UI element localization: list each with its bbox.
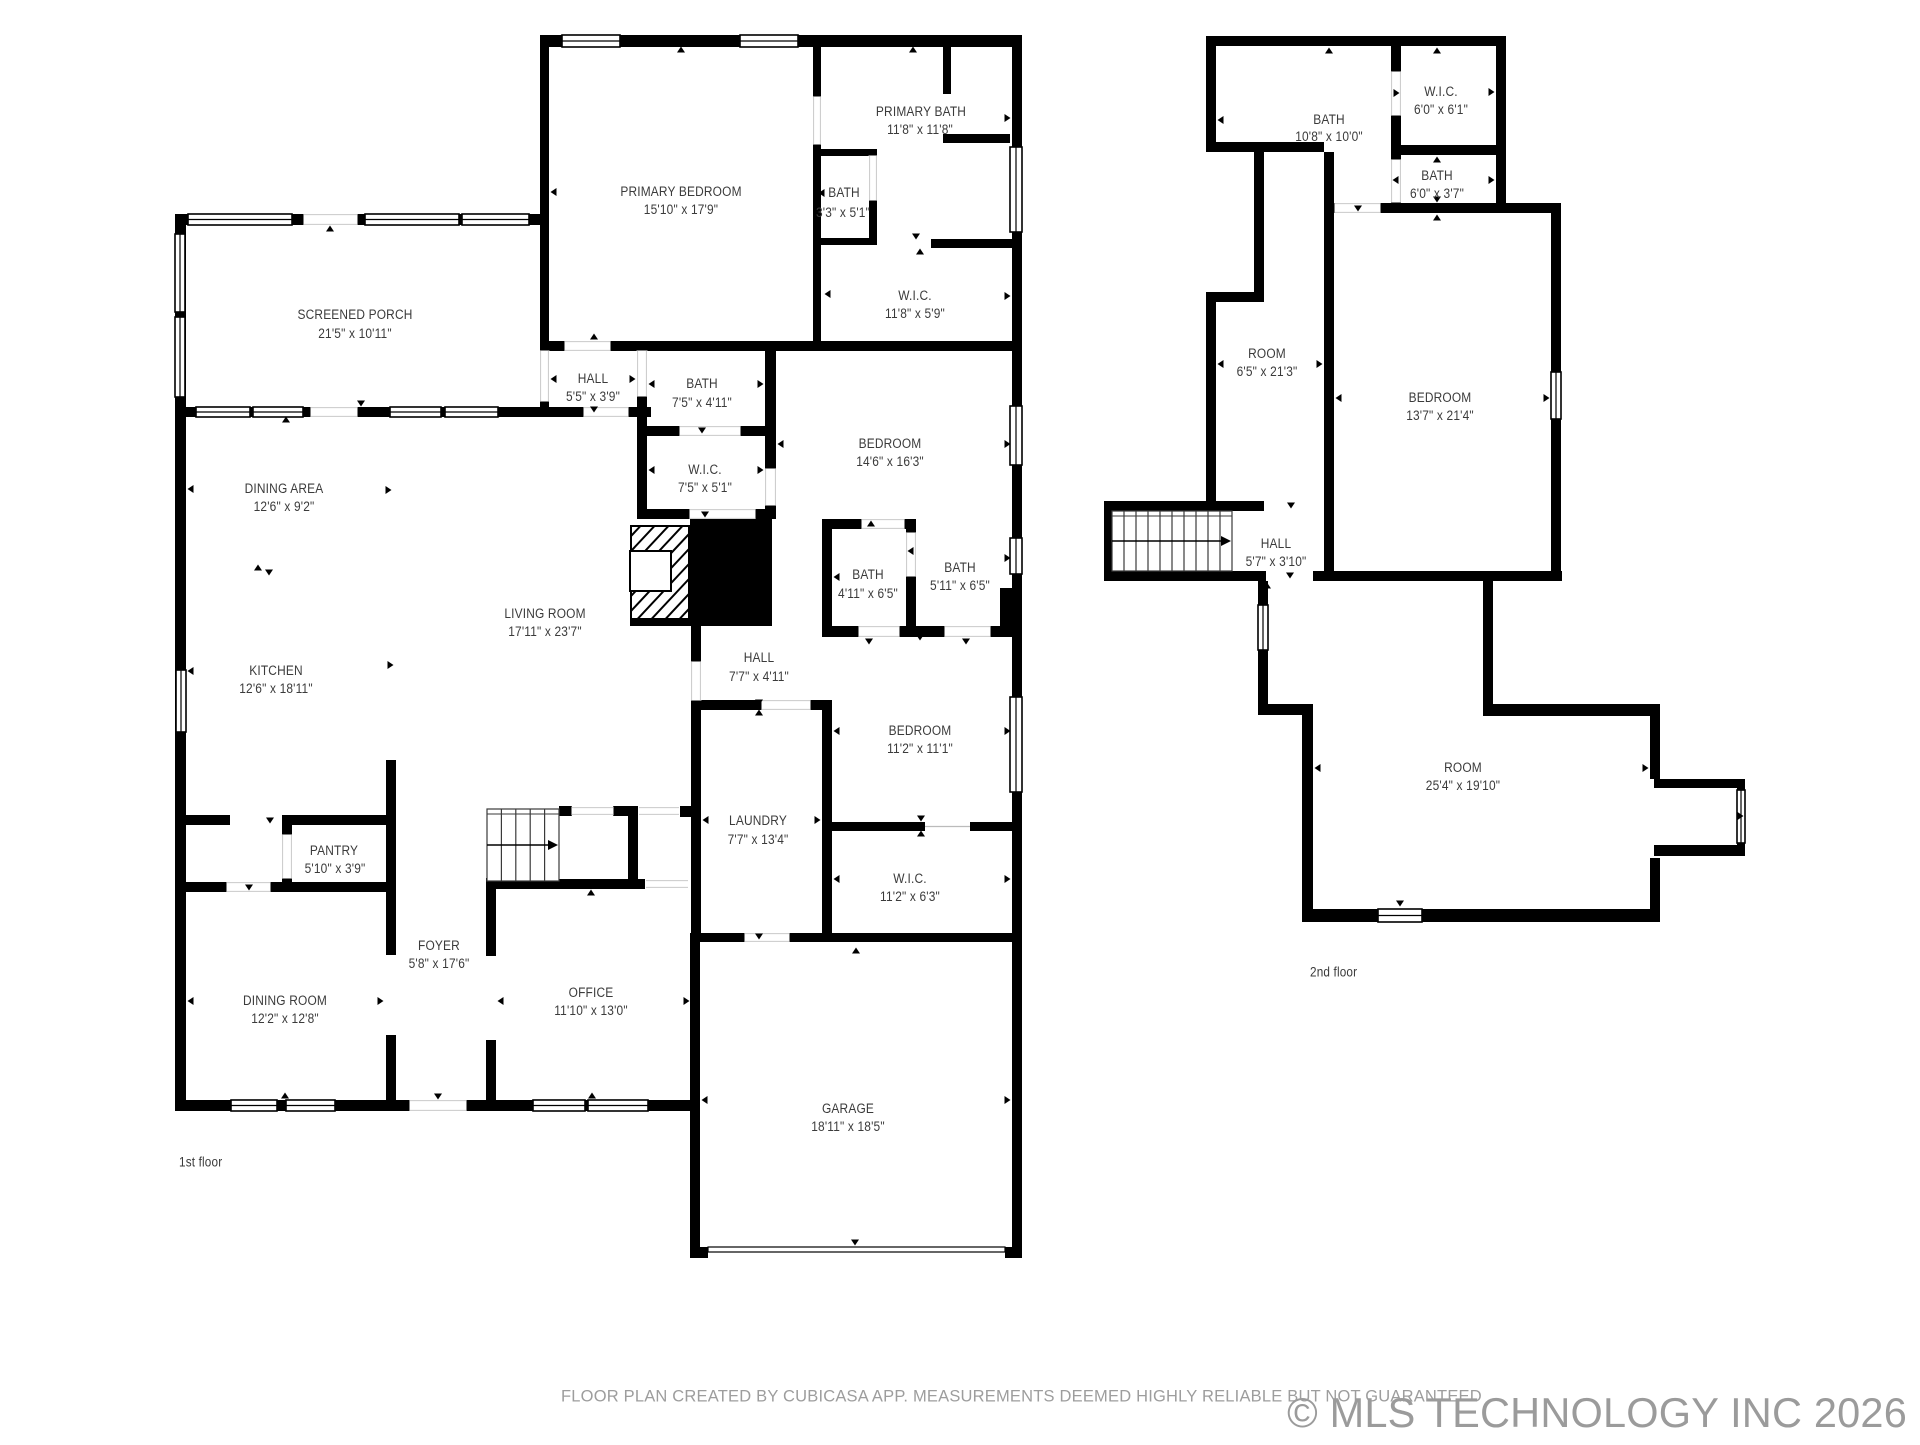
svg-text:12'2" x 12'8": 12'2" x 12'8" [251,1010,319,1026]
svg-text:BATH: BATH [944,559,976,575]
svg-text:W.I.C.: W.I.C. [1424,83,1457,99]
svg-text:7'5" x 4'11": 7'5" x 4'11" [672,394,732,410]
svg-text:6'0" x 6'1": 6'0" x 6'1" [1414,101,1468,117]
svg-text:LIVING ROOM: LIVING ROOM [504,605,585,621]
svg-text:21'5" x 10'11": 21'5" x 10'11" [318,325,392,341]
svg-text:11'8" x 5'9": 11'8" x 5'9" [885,305,945,321]
svg-text:11'2" x 11'1": 11'2" x 11'1" [887,740,953,756]
svg-text:KITCHEN: KITCHEN [249,662,303,678]
svg-text:BATH: BATH [1421,167,1453,183]
svg-text:PRIMARY BEDROOM: PRIMARY BEDROOM [620,183,741,199]
svg-text:BATH: BATH [852,566,884,582]
svg-text:PRIMARY BATH: PRIMARY BATH [876,103,966,119]
svg-text:1st floor: 1st floor [179,1154,223,1170]
svg-text:6'5" x 21'3": 6'5" x 21'3" [1237,363,1298,379]
svg-text:11'8" x 11'8": 11'8" x 11'8" [887,121,953,137]
svg-text:ROOM: ROOM [1248,345,1286,361]
svg-text:12'6" x 9'2": 12'6" x 9'2" [254,498,315,514]
svg-text:© MLS TECHNOLOGY INC 2026: © MLS TECHNOLOGY INC 2026 [1287,1389,1907,1436]
svg-text:25'4" x 19'10": 25'4" x 19'10" [1426,777,1501,793]
svg-text:7'7" x 13'4": 7'7" x 13'4" [728,831,789,847]
svg-text:LAUNDRY: LAUNDRY [729,812,787,828]
svg-text:HALL: HALL [1261,535,1292,551]
svg-text:DINING ROOM: DINING ROOM [243,992,327,1008]
svg-text:15'10" x 17'9": 15'10" x 17'9" [644,201,719,217]
svg-text:13'7" x 21'4": 13'7" x 21'4" [1406,407,1474,423]
svg-text:11'10" x 13'0": 11'10" x 13'0" [554,1002,628,1018]
svg-text:ROOM: ROOM [1444,759,1482,775]
svg-text:W.I.C.: W.I.C. [898,287,931,303]
svg-text:BEDROOM: BEDROOM [889,722,952,738]
svg-text:5'10" x 3'9": 5'10" x 3'9" [305,860,366,876]
svg-text:3'3" x 5'1": 3'3" x 5'1" [816,204,870,220]
svg-text:10'8" x 10'0": 10'8" x 10'0" [1295,128,1363,144]
svg-text:BATH: BATH [686,375,718,391]
svg-text:5'7" x 3'10": 5'7" x 3'10" [1246,553,1307,569]
svg-text:BATH: BATH [1313,111,1345,127]
svg-text:7'5" x 5'1": 7'5" x 5'1" [678,479,732,495]
svg-text:18'11" x 18'5": 18'11" x 18'5" [811,1118,885,1134]
svg-text:17'11" x 23'7": 17'11" x 23'7" [508,623,582,639]
svg-text:BEDROOM: BEDROOM [859,435,922,451]
svg-text:PANTRY: PANTRY [310,842,358,858]
svg-text:7'7" x 4'11": 7'7" x 4'11" [729,668,789,684]
svg-text:6'0" x 3'7": 6'0" x 3'7" [1410,185,1464,201]
svg-text:5'8" x 17'6": 5'8" x 17'6" [409,955,470,971]
svg-text:DINING AREA: DINING AREA [245,480,324,496]
svg-text:HALL: HALL [744,649,775,665]
svg-text:FOYER: FOYER [418,937,460,953]
svg-text:W.I.C.: W.I.C. [688,461,721,477]
svg-text:W.I.C.: W.I.C. [893,870,926,886]
svg-text:BATH: BATH [828,184,860,200]
svg-text:11'2" x 6'3": 11'2" x 6'3" [880,888,940,904]
svg-text:5'5" x 3'9": 5'5" x 3'9" [566,388,620,404]
svg-text:BEDROOM: BEDROOM [1409,389,1472,405]
svg-text:GARAGE: GARAGE [822,1100,874,1116]
svg-text:2nd floor: 2nd floor [1310,964,1358,980]
svg-text:SCREENED PORCH: SCREENED PORCH [298,306,413,322]
svg-text:14'6" x 16'3": 14'6" x 16'3" [856,453,924,469]
svg-text:HALL: HALL [578,370,609,386]
svg-text:12'6" x 18'11": 12'6" x 18'11" [239,680,313,696]
svg-text:5'11" x 6'5": 5'11" x 6'5" [930,577,990,593]
svg-text:OFFICE: OFFICE [569,984,614,1000]
svg-text:4'11" x 6'5": 4'11" x 6'5" [838,585,898,601]
